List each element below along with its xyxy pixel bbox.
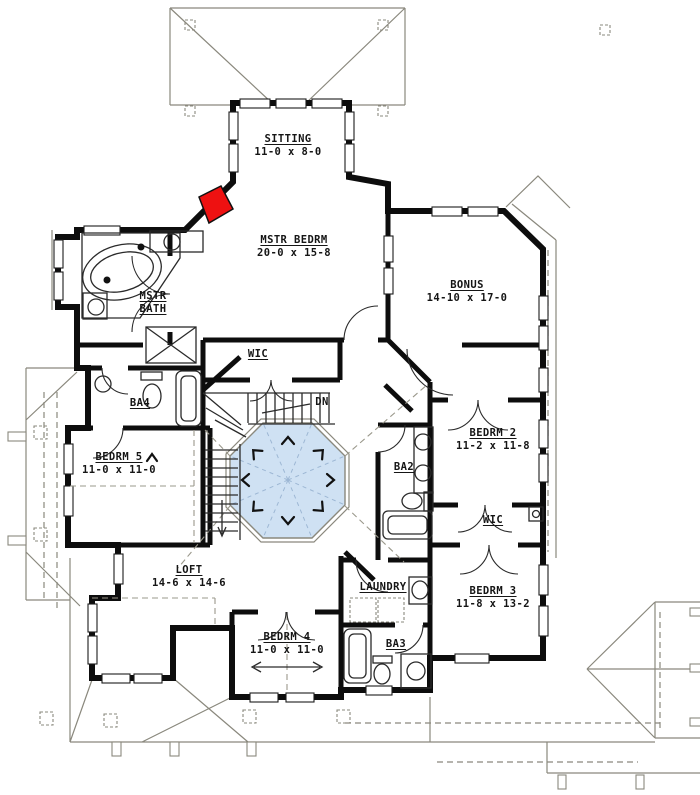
room-label-loft: LOFT 14-6 x 14-6 [152,564,226,590]
bathtub-icon [176,371,201,426]
sink-icon [407,662,425,680]
room-label-bedrm4: BEDRM 4 11-0 x 11-0 [250,631,324,657]
dryer-icon [378,598,404,622]
washer-icon [350,598,376,622]
toilet-icon [141,372,162,380]
room-label-bedrm3: BEDRM 3 11-8 x 13-2 [456,585,530,611]
room-label-wic2: WIC [483,514,503,527]
fireplace-marker [199,186,233,223]
room-label-mstr-bedrm: MSTR BEDRM 20-0 x 15-8 [257,234,331,260]
bathtub-icon [383,511,432,539]
room-label-sitting: SITTING 11-0 x 8-0 [254,133,321,159]
room-label-mstr-bath: MSTR BATH [140,290,167,316]
room-label-wic-master: WIC [248,348,268,361]
stairs-down-label: DN [315,396,328,409]
room-label-laundry: LAUNDRY [359,581,406,594]
open-to-below-octagon [226,419,349,542]
room-label-bedrm2: BEDRM 2 11-2 x 11-8 [456,427,530,453]
toilet-icon [373,656,392,663]
bathtub-icon [344,629,371,683]
room-label-ba3: BA3 [386,638,406,651]
room-label-ba2: BA2 [394,461,414,474]
sink-icon [95,376,111,392]
floor-plan-page: SITTING 11-0 x 8-0 MSTR BEDRM 20-0 x 15-… [0,0,700,795]
room-label-bonus: BONUS 14-10 x 17-0 [427,279,508,305]
room-label-bedrm5: BEDRM 5 11-0 x 11-0 [82,451,156,477]
windows [54,99,548,702]
floor-plan-drawing [0,0,700,795]
dn-leader-line [262,404,310,413]
room-label-ba4: BA4 [130,397,150,410]
sink-icon [88,299,104,315]
